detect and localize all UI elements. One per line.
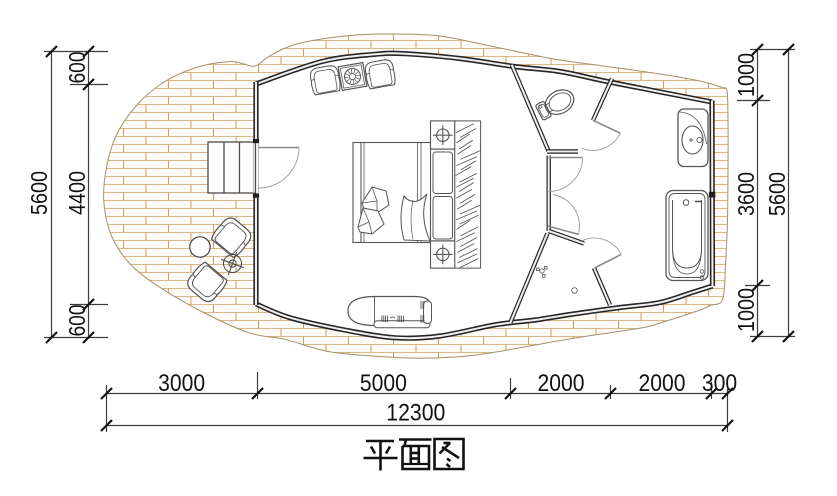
svg-text:4400: 4400 [64, 171, 90, 215]
svg-text:600: 600 [64, 305, 90, 337]
svg-text:1000: 1000 [733, 288, 759, 332]
svg-text:600: 600 [64, 52, 90, 84]
svg-text:5000: 5000 [360, 370, 407, 397]
svg-text:3600: 3600 [733, 172, 759, 216]
svg-text:2000: 2000 [639, 370, 686, 397]
svg-text:5600: 5600 [26, 171, 52, 215]
svg-text:5600: 5600 [764, 172, 790, 216]
svg-text:3000: 3000 [158, 370, 205, 397]
svg-text:1000: 1000 [733, 53, 759, 97]
svg-text:2000: 2000 [538, 370, 585, 397]
svg-text:12300: 12300 [386, 400, 445, 427]
svg-text:300: 300 [702, 370, 737, 397]
